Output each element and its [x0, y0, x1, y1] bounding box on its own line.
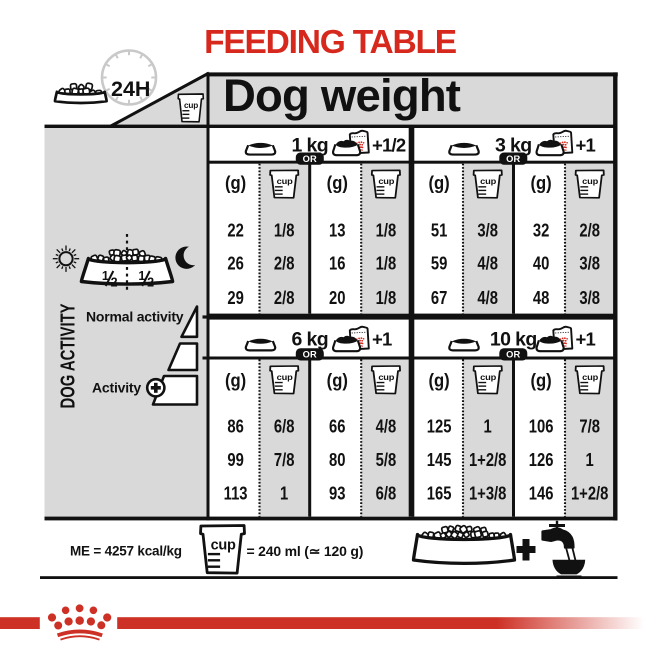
- svg-text:(g): (g): [428, 370, 449, 391]
- svg-text:FEEDING TABLE: FEEDING TABLE: [204, 24, 457, 61]
- svg-text:32: 32: [533, 220, 549, 241]
- svg-text:1/8: 1/8: [376, 287, 397, 308]
- svg-text:146: 146: [529, 483, 554, 504]
- svg-text:(g): (g): [225, 370, 246, 391]
- svg-text:93: 93: [329, 483, 345, 504]
- svg-text:2/8: 2/8: [579, 220, 600, 241]
- svg-text:cup: cup: [378, 372, 395, 381]
- svg-text:80: 80: [329, 450, 345, 471]
- svg-text:1+2/8: 1+2/8: [469, 450, 506, 471]
- svg-text:40: 40: [533, 253, 549, 274]
- svg-text:113: 113: [224, 483, 248, 504]
- svg-text:3/8: 3/8: [579, 253, 600, 274]
- svg-text:5/8: 5/8: [376, 450, 397, 471]
- svg-text:26: 26: [227, 253, 243, 274]
- svg-text:7/8: 7/8: [579, 416, 600, 437]
- svg-text:Normal activity: Normal activity: [86, 309, 184, 325]
- svg-text:145: 145: [427, 450, 452, 471]
- svg-text:Activity: Activity: [92, 380, 141, 396]
- svg-text:99: 99: [227, 450, 243, 471]
- svg-text:(g): (g): [530, 370, 551, 391]
- svg-text:29: 29: [227, 287, 243, 308]
- svg-text:(g): (g): [327, 172, 348, 193]
- svg-text:4/8: 4/8: [376, 416, 397, 437]
- svg-text:24H: 24H: [111, 77, 150, 101]
- svg-text:126: 126: [529, 450, 554, 471]
- svg-text:4/8: 4/8: [477, 287, 498, 308]
- svg-text:1/8: 1/8: [376, 253, 397, 274]
- svg-text:cup: cup: [378, 177, 395, 186]
- svg-text:13: 13: [329, 220, 345, 241]
- svg-text:4/8: 4/8: [477, 253, 498, 274]
- svg-text:1/8: 1/8: [274, 220, 295, 241]
- svg-text:67: 67: [431, 287, 447, 308]
- svg-text:165: 165: [427, 483, 452, 504]
- svg-text:6 kg: 6 kg: [291, 329, 328, 351]
- svg-text:+1: +1: [576, 134, 596, 155]
- svg-text:3/8: 3/8: [579, 287, 600, 308]
- svg-text:cup: cup: [184, 100, 198, 110]
- svg-text:Dog weight: Dog weight: [223, 70, 461, 121]
- svg-text:ME = 4257 kcal/kg: ME = 4257 kcal/kg: [70, 544, 182, 559]
- svg-text:1+2/8: 1+2/8: [571, 483, 608, 504]
- svg-text:10 kg: 10 kg: [490, 329, 537, 351]
- svg-text:+1/2: +1/2: [372, 134, 406, 155]
- svg-text:6/8: 6/8: [376, 483, 397, 504]
- svg-text:= 240 ml (≃ 120 g): = 240 ml (≃ 120 g): [247, 543, 364, 559]
- svg-text:3/8: 3/8: [477, 220, 498, 241]
- svg-text:125: 125: [427, 416, 452, 437]
- svg-text:1+3/8: 1+3/8: [469, 483, 506, 504]
- svg-text:2/8: 2/8: [274, 253, 295, 274]
- svg-text:86: 86: [227, 416, 243, 437]
- svg-text:cup: cup: [211, 538, 236, 554]
- svg-text:1: 1: [586, 450, 594, 471]
- svg-text:2/8: 2/8: [274, 287, 295, 308]
- svg-text:cup: cup: [480, 177, 497, 186]
- svg-text:cup: cup: [277, 177, 294, 186]
- svg-text:1: 1: [280, 483, 288, 504]
- svg-text:cup: cup: [582, 177, 599, 186]
- svg-text:cup: cup: [277, 372, 294, 381]
- svg-text:+1: +1: [372, 329, 392, 350]
- svg-text:59: 59: [431, 253, 447, 274]
- svg-text:OR: OR: [303, 154, 317, 164]
- svg-text:2: 2: [111, 276, 118, 290]
- svg-text:(g): (g): [225, 172, 246, 193]
- svg-text:6/8: 6/8: [274, 416, 295, 437]
- svg-text:OR: OR: [506, 154, 520, 164]
- svg-text:OR: OR: [506, 350, 520, 360]
- svg-text:1: 1: [484, 416, 492, 437]
- svg-text:20: 20: [329, 287, 345, 308]
- svg-text:16: 16: [329, 253, 345, 274]
- svg-text:OR: OR: [303, 350, 317, 360]
- svg-text:DOG ACTIVITY: DOG ACTIVITY: [56, 303, 79, 408]
- svg-text:1/8: 1/8: [376, 220, 397, 241]
- svg-text:(g): (g): [327, 370, 348, 391]
- svg-text:cup: cup: [582, 372, 599, 381]
- svg-text:2: 2: [147, 276, 154, 290]
- svg-text:51: 51: [431, 220, 447, 241]
- svg-text:48: 48: [533, 287, 549, 308]
- svg-text:(g): (g): [530, 172, 551, 193]
- svg-text:+1: +1: [576, 329, 596, 350]
- svg-text:7/8: 7/8: [274, 450, 295, 471]
- svg-text:22: 22: [227, 220, 243, 241]
- svg-text:cup: cup: [480, 372, 497, 381]
- svg-text:106: 106: [529, 416, 554, 437]
- svg-text:(g): (g): [428, 172, 449, 193]
- svg-text:66: 66: [329, 416, 345, 437]
